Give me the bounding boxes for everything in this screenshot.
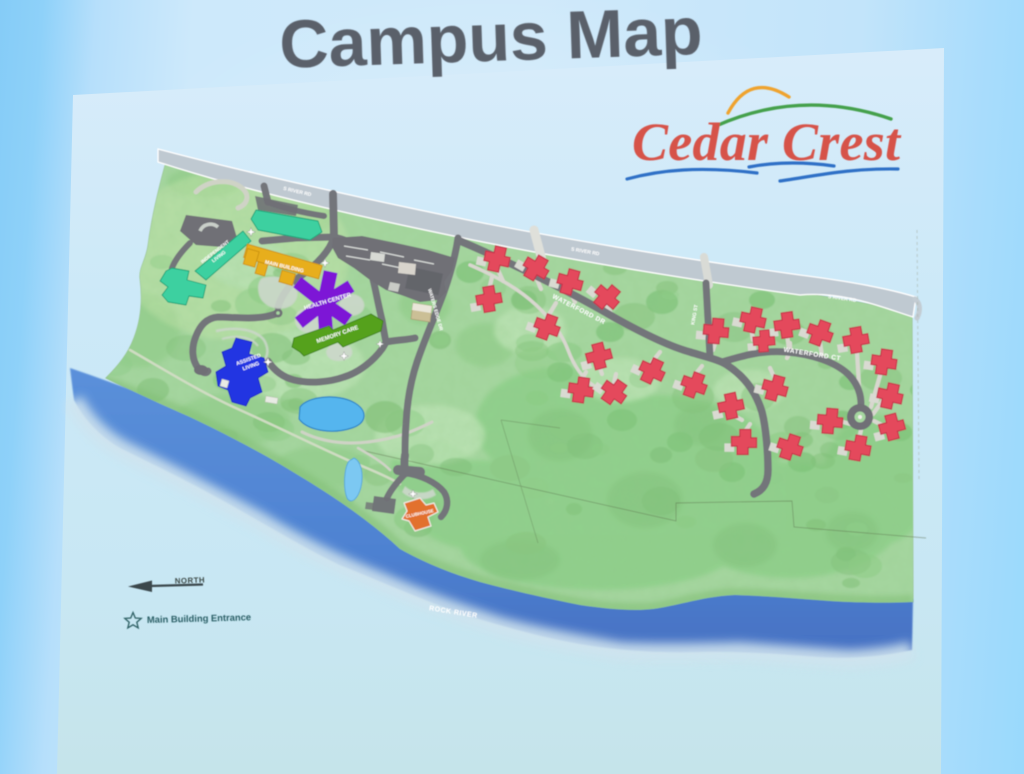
svg-text:NORTH: NORTH <box>175 575 206 585</box>
svg-text:Campus Map: Campus Map <box>278 0 703 83</box>
